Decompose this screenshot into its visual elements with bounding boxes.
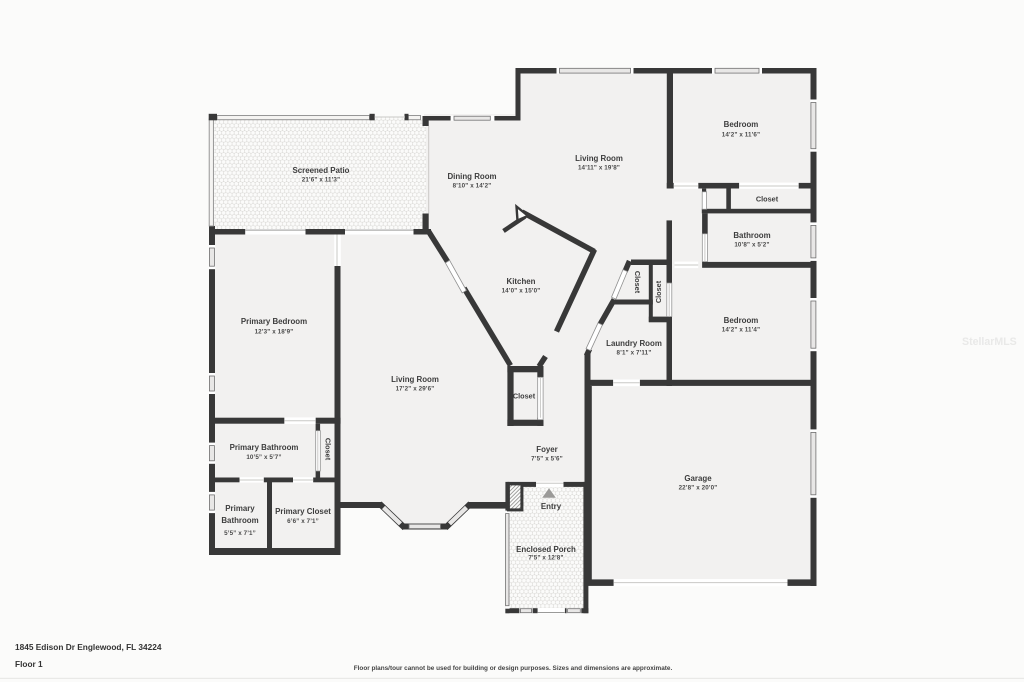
svg-text:Bathroom: Bathroom <box>733 231 770 240</box>
svg-text:Living Room: Living Room <box>575 154 623 163</box>
svg-text:Closet: Closet <box>324 438 333 461</box>
svg-text:Primary Bathroom: Primary Bathroom <box>230 443 299 452</box>
svg-text:22’8” x 20’0”: 22’8” x 20’0” <box>679 485 718 492</box>
svg-text:Living Room: Living Room <box>391 375 439 384</box>
svg-text:Closet: Closet <box>654 280 663 303</box>
svg-text:Kitchen: Kitchen <box>507 277 536 286</box>
svg-text:5’5” x 7’1”: 5’5” x 7’1” <box>224 530 256 537</box>
svg-text:10’8” x 5’2”: 10’8” x 5’2” <box>734 242 769 249</box>
svg-text:14’0” x 15’0”: 14’0” x 15’0” <box>502 288 541 295</box>
svg-text:6’6” x 7’1”: 6’6” x 7’1” <box>287 518 319 525</box>
svg-text:Dining Room: Dining Room <box>447 172 496 181</box>
svg-text:17’2” x 29’6”: 17’2” x 29’6” <box>396 386 435 393</box>
svg-text:7’5” x 5’6”: 7’5” x 5’6” <box>531 456 563 463</box>
svg-text:21’6” x 11’3”: 21’6” x 11’3” <box>302 177 340 184</box>
svg-text:Enclosed Porch: Enclosed Porch <box>516 545 576 554</box>
svg-text:Primary: Primary <box>225 504 255 513</box>
svg-text:14’2” x 11’4”: 14’2” x 11’4” <box>722 327 760 334</box>
svg-text:Primary Bedroom: Primary Bedroom <box>241 317 307 326</box>
svg-text:Foyer: Foyer <box>536 445 558 454</box>
svg-text:Floor plans/tour cannot be use: Floor plans/tour cannot be used for buil… <box>354 665 673 672</box>
svg-text:8’10” x 14’2”: 8’10” x 14’2” <box>453 183 492 190</box>
svg-text:10’5” x 5’7”: 10’5” x 5’7” <box>246 454 281 461</box>
svg-text:StellarMLS: StellarMLS <box>962 336 1017 348</box>
svg-text:Bathroom: Bathroom <box>221 516 258 525</box>
svg-text:1845 Edison Dr Englewood, FL 3: 1845 Edison Dr Englewood, FL 34224 <box>15 642 162 652</box>
svg-text:Garage: Garage <box>684 474 712 483</box>
svg-text:Bedroom: Bedroom <box>724 120 759 129</box>
svg-text:Primary Closet: Primary Closet <box>275 507 331 516</box>
svg-text:Screened Patio: Screened Patio <box>292 166 349 175</box>
svg-text:Entry: Entry <box>541 502 562 511</box>
svg-text:Bedroom: Bedroom <box>724 316 759 325</box>
svg-text:8’1” x 7’11”: 8’1” x 7’11” <box>617 350 652 357</box>
svg-text:Closet: Closet <box>756 195 779 204</box>
svg-text:14’11” x 19’8”: 14’11” x 19’8” <box>578 165 620 172</box>
svg-text:Closet: Closet <box>633 271 642 294</box>
svg-text:Floor 1: Floor 1 <box>15 659 43 669</box>
svg-text:14’2” x 11’6”: 14’2” x 11’6” <box>722 132 760 139</box>
svg-text:12’3” x 18’9”: 12’3” x 18’9” <box>255 329 294 336</box>
svg-text:Laundry Room: Laundry Room <box>606 339 662 348</box>
svg-text:7’5” x 12’8”: 7’5” x 12’8” <box>528 555 563 562</box>
svg-text:Closet: Closet <box>513 392 536 401</box>
